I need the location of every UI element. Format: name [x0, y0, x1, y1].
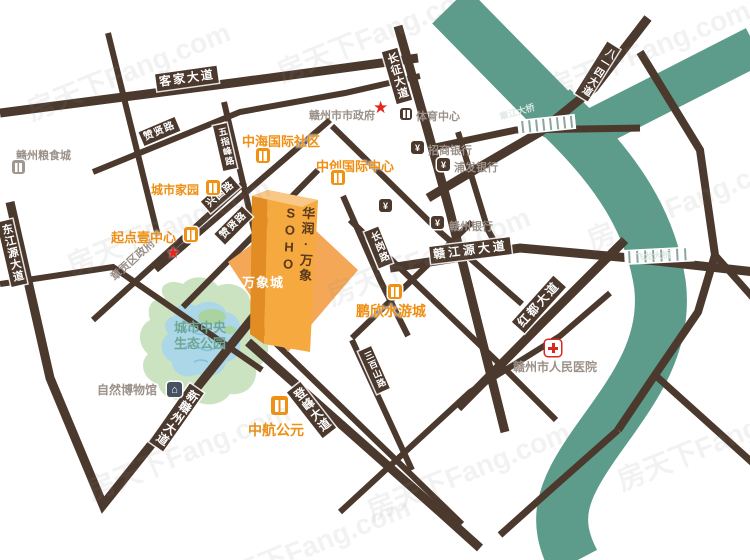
- building-icon: [12, 160, 25, 174]
- poi-zhonghai-international: 中海国际社区: [242, 131, 320, 150]
- poi-spd-bank: 浦发银行: [454, 159, 498, 175]
- park-label-line2: 生态公园: [162, 336, 238, 352]
- building-icon: [388, 284, 402, 299]
- star-icon: ★: [373, 99, 388, 116]
- building-icon: [184, 227, 198, 242]
- poi-sports-center: 体育中心: [416, 108, 460, 124]
- hospital-icon: [545, 340, 561, 356]
- poi-qidian-center: 起点壹中心: [111, 227, 176, 246]
- bank-icon: ¥: [411, 141, 424, 154]
- poi-zhonghang-gongyuan: 中航公元: [248, 420, 304, 440]
- building-icon: [271, 396, 288, 415]
- mall-label: 万象城: [242, 272, 284, 291]
- bank-icon: ¥: [431, 216, 444, 229]
- poi-pengxin-aqua-city: 鹏欣水游城: [356, 301, 426, 321]
- poi-peoples-hospital: 赣州市人民医院: [513, 358, 597, 375]
- poi-city-government: 赣州市市政府: [309, 107, 375, 123]
- bank-icon: ¥: [437, 158, 450, 171]
- poi-ganzhou-bank: 赣州银行: [449, 218, 493, 234]
- poi-nature-museum: 自然博物馆: [97, 381, 157, 398]
- building-icon: [331, 170, 345, 185]
- bank-icon: ¥: [379, 199, 392, 212]
- poi-city-homeland: 城市家园: [151, 181, 199, 198]
- poi-cmb-bank: 招商银行: [428, 142, 472, 158]
- map-canvas: [0, 0, 750, 560]
- building-icon: [206, 180, 220, 195]
- building-icon: [256, 148, 270, 163]
- park-label-line1: 城市中央: [162, 320, 238, 336]
- location-map: 客家大道 长征大道 八一四大道 赞贤路 五指峰路 兴国路 赞贤路 长岗路 赣江源…: [0, 0, 750, 560]
- star-icon: ★: [166, 246, 180, 262]
- park-label: 城市中央 生态公园: [162, 320, 238, 353]
- poi-zhongchuang-international: 中创国际中心: [316, 156, 394, 175]
- stadium-icon: [400, 108, 412, 120]
- museum-icon: ⌂: [167, 382, 182, 397]
